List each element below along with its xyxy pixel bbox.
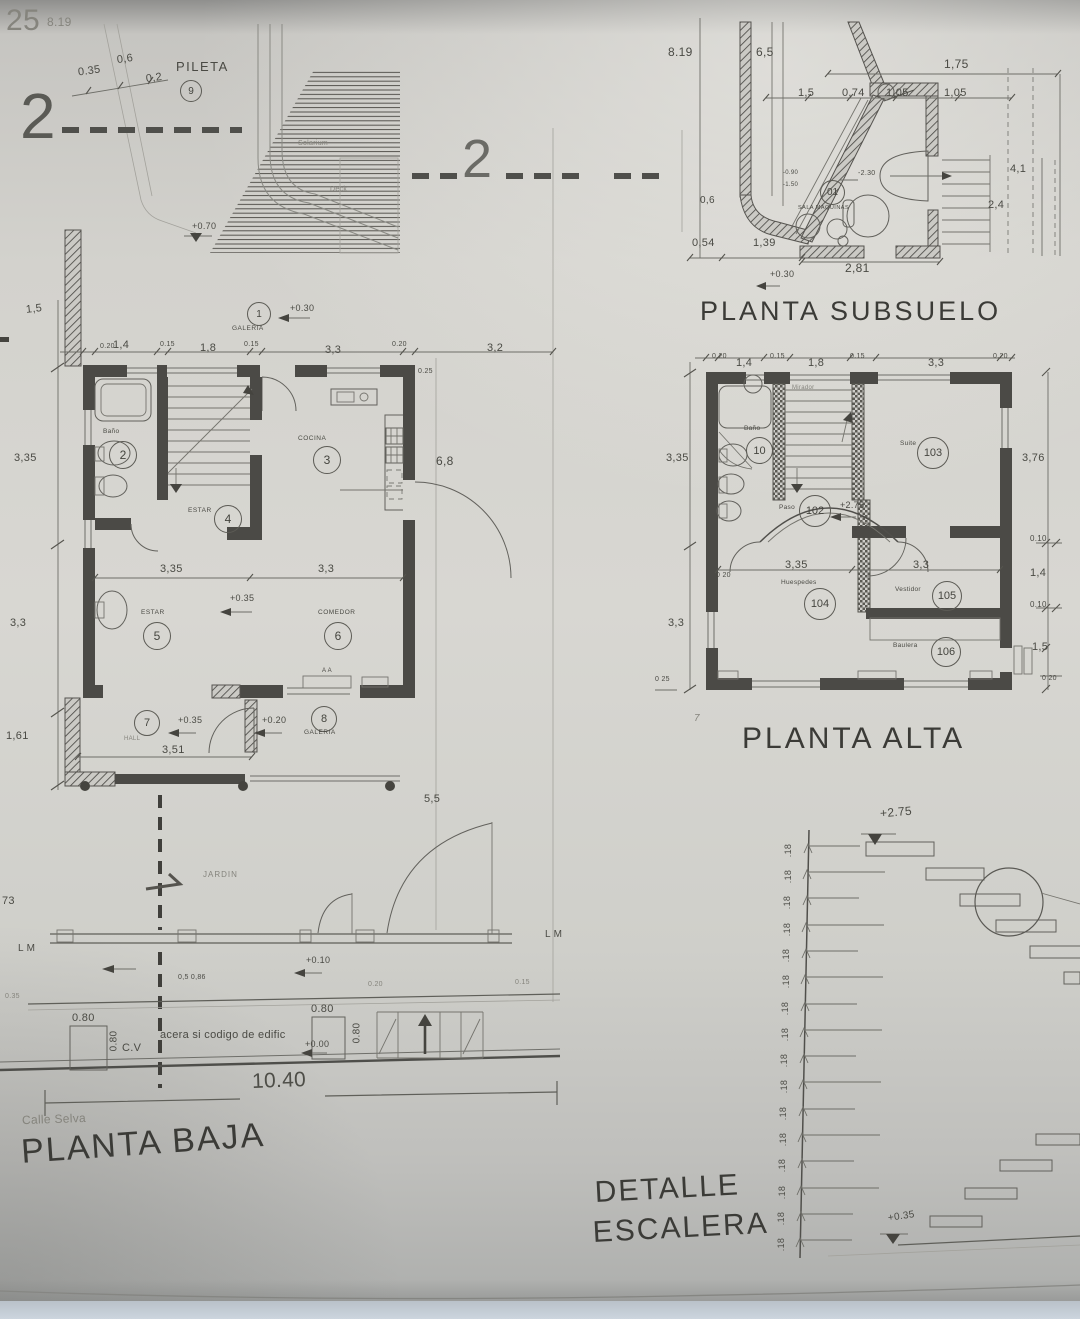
paper-edge-shadow <box>0 1280 1080 1302</box>
pool-plan-drawing <box>0 24 682 1002</box>
blueprint-sheet: 25 8.19 2 2 0.35 0,6 0,2 PILETA 9 Solari… <box>0 0 1080 1319</box>
alta-dim-33m: 3,3 <box>913 560 929 571</box>
alta-dim-14t: 1,4 <box>736 358 752 369</box>
baja-dim-14: 1,4 <box>113 340 129 351</box>
alta-dim-18: 1,8 <box>808 358 824 369</box>
baja-dim-15l: 1,5 <box>25 303 42 316</box>
vestidor-circle: 105 <box>932 581 962 611</box>
alta-dim-025: 0 25 <box>655 676 670 683</box>
huespedes-label: Huespedes <box>781 580 817 587</box>
alta-level-275: +2.75 <box>840 501 864 510</box>
sub-dim-074: 0,74 <box>842 88 865 99</box>
riser-dim-7: .18 <box>781 1002 790 1015</box>
riser-dim-10: .18 <box>780 1080 789 1093</box>
baja-level-035b: +0.35 <box>178 716 202 725</box>
alta-dim-015a: 0.15 <box>770 353 785 360</box>
baja-dim-020b: 0.20 <box>392 341 407 348</box>
sub-dim-65: 6,5 <box>756 46 774 58</box>
sub-room-circle: 01 <box>820 180 845 205</box>
estar4-circle: 4 <box>214 505 242 533</box>
alta-dim-14r: 1,4 <box>1030 568 1046 579</box>
street-name: Calle Selva <box>22 1112 86 1126</box>
alta-dim-010a: 0.10 <box>1030 535 1047 543</box>
baja-dim-035c: 0.35 <box>5 993 20 1000</box>
suite-label: Suite <box>900 441 916 448</box>
sub-dim-24: 2,4 <box>988 200 1004 211</box>
baja-dim-351: 3,51 <box>162 745 185 756</box>
baja-level-010: +0.10 <box>306 956 330 965</box>
bano2-circle: 2 <box>109 441 137 469</box>
galeria8-label: GALERIA <box>304 730 336 737</box>
riser-dim-1: .18 <box>784 844 793 857</box>
alta-dim-010b: 0.10 <box>1030 601 1047 609</box>
estar5-label: ESTAR <box>141 610 165 617</box>
pool-level: +0.70 <box>192 222 216 231</box>
pool-number-circle: 9 <box>180 80 202 102</box>
paso-label: Paso <box>779 505 795 512</box>
baja-level-035a: +0.35 <box>230 594 254 603</box>
baja-dim-173: 73 <box>2 896 15 907</box>
riser-dim-5: .18 <box>782 949 791 962</box>
hall7-label: HALL <box>124 736 140 742</box>
galeria1-label: GALERIA <box>232 326 264 333</box>
jardin-label: JARDIN <box>203 871 238 879</box>
planta-alta-title: PLANTA ALTA <box>742 724 965 754</box>
baja-dim-015c: 0.15 <box>515 979 530 986</box>
baulera-circle: 106 <box>931 637 961 667</box>
alta-mark-7: 7 <box>694 714 700 724</box>
mirador-label: Mirador <box>792 385 814 391</box>
comedor6-circle: 6 <box>324 622 352 650</box>
sub-room-label: SALA MAQUINAS <box>798 206 849 212</box>
alta-dim-020r: 0 20 <box>1042 675 1057 682</box>
estar4-label: ESTAR <box>188 508 212 515</box>
riser-dim-4: .18 <box>783 923 792 936</box>
alta-dim-33t: 3,3 <box>928 358 944 369</box>
huespedes-circle: 104 <box>804 588 836 620</box>
solarium-label: Solarium <box>298 140 328 147</box>
riser-dim-16: .18 <box>777 1238 786 1251</box>
photo-bottom-strip <box>0 1301 1080 1319</box>
sub-dim-15: 1,5 <box>798 88 814 99</box>
baja-dim-33: 3,3 <box>325 345 341 356</box>
baja-level-030: +0.30 <box>290 304 314 313</box>
baja-dim-68: 6,8 <box>436 455 454 467</box>
planta-alta-drawing <box>655 354 1062 693</box>
sub-dim-105a: 1,05 <box>886 88 909 99</box>
sub-dim-139: 1,39 <box>753 238 776 249</box>
baja-level-000: +0.00 <box>305 1040 329 1049</box>
sub-dim-054: 0,54 <box>692 238 715 249</box>
estar5-circle: 5 <box>143 622 171 650</box>
baja-level-020: +0.20 <box>262 716 286 725</box>
riser-dim-6: .18 <box>782 975 791 988</box>
hall7-circle: 7 <box>134 710 160 736</box>
alta-dim-335l: 3,35 <box>666 453 689 464</box>
box-080a-label: 0.80 <box>72 1013 95 1024</box>
sub-level-150: -1.50 <box>783 182 798 188</box>
subsuelo-plan-drawing <box>687 18 1061 290</box>
alta-dim-020b: 0.20 <box>993 353 1008 360</box>
subsuelo-title: PLANTA SUBSUELO <box>700 298 1001 325</box>
riser-dim-12: .18 <box>779 1133 788 1146</box>
sheet-corner-dim: 8.19 <box>47 16 72 28</box>
cocina3-circle: 3 <box>313 446 341 474</box>
esc-level-top: +2.75 <box>880 805 913 820</box>
baja-dim-33l: 3,3 <box>10 618 26 629</box>
box-080b-side: 0.80 <box>352 1023 362 1044</box>
sub-dim-175: 1,75 <box>944 58 969 70</box>
sub-dim-06: 0,6 <box>700 196 715 206</box>
pool-dim-06: 0,6 <box>116 53 134 66</box>
sub-dim-281: 2,81 <box>845 262 870 274</box>
suite-circle: 103 <box>917 437 949 469</box>
lm-label-left: L M <box>18 944 35 954</box>
deck-label: Deck <box>330 186 347 193</box>
sub-level-230: -2.30 <box>858 170 875 177</box>
pool-dim-02: 0,2 <box>145 72 163 85</box>
vestidor-label: Vestidor <box>895 587 921 594</box>
cocina3-label: COCINA <box>298 436 326 443</box>
baja-dim-55: 5,5 <box>424 794 440 805</box>
baja-dim-18: 1,8 <box>200 343 216 354</box>
baja-dim-015b: 0.15 <box>244 341 259 348</box>
detalle-title-line1: DETALLE <box>594 1170 741 1208</box>
riser-dim-2: .18 <box>784 870 793 883</box>
baja-dim-161: 1,61 <box>6 731 29 742</box>
sheet-corner-number: 25 <box>6 6 40 36</box>
comedor6-label: COMEDOR <box>318 610 355 617</box>
baja-dim-015a: 0.15 <box>160 341 175 348</box>
alta-dim-020m: 0 20 <box>716 572 731 579</box>
sub-level-090: -0.90 <box>783 170 798 176</box>
box-080a-side: 0.80 <box>109 1031 119 1052</box>
lot-width-dim: 10.40 <box>252 1069 307 1092</box>
cv-label: C.V <box>122 1043 141 1054</box>
bano10-label: Baño <box>744 426 760 433</box>
baja-dim-025: 0.25 <box>418 368 433 375</box>
galeria1-circle: 1 <box>247 302 271 326</box>
baja-dim-33m: 3,3 <box>318 564 334 575</box>
paso-circle: 102 <box>799 495 831 527</box>
baja-dim-32: 3,2 <box>487 343 503 354</box>
bano2-label: Baño <box>103 429 119 436</box>
alta-dim-15r: 1,5 <box>1032 642 1048 653</box>
baja-aa-mark: A A <box>322 668 332 674</box>
riser-dim-9: .18 <box>780 1054 789 1067</box>
lm-label-right: L M <box>545 930 562 940</box>
alta-dim-335m: 3,35 <box>785 560 808 571</box>
bano10-circle: 10 <box>746 437 773 464</box>
section-mark-left: 2 <box>20 84 56 148</box>
section-mark-mid: 2 <box>462 132 492 186</box>
box-080b-label: 0.80 <box>311 1004 334 1015</box>
alta-dim-33l: 3,3 <box>668 618 684 629</box>
baulera-label: Baulera <box>893 643 918 650</box>
planta-baja-drawing <box>0 230 560 1116</box>
riser-dim-14: .18 <box>778 1186 787 1199</box>
alta-dim-015b: 0.15 <box>850 353 865 360</box>
sub-dim-105b: 1,05 <box>944 88 967 99</box>
sub-level-030: +0.30 <box>770 270 794 279</box>
baja-dim-020c: 0.20 <box>368 981 383 988</box>
riser-dim-11: .18 <box>779 1107 788 1120</box>
riser-dim-3: .18 <box>783 896 792 909</box>
baja-dim-335m: 3,35 <box>160 564 183 575</box>
sub-dim-41: 4,1 <box>1010 164 1026 175</box>
plan-linework <box>0 0 1080 1319</box>
baja-dim-0586: 0,5 0,86 <box>178 974 206 981</box>
sidewalk-note: acera si codigo de edific <box>160 1030 286 1041</box>
riser-dim-8: .18 <box>781 1028 790 1041</box>
alta-dim-376: 3,76 <box>1022 453 1045 464</box>
sub-dim-819: 8.19 <box>668 46 693 58</box>
baja-dim-335l: 3,35 <box>14 453 37 464</box>
alta-dim-020a: 0.20 <box>712 353 727 360</box>
pool-label: PILETA <box>176 60 229 73</box>
riser-dim-15: .18 <box>777 1212 786 1225</box>
riser-dim-13: .18 <box>778 1159 787 1172</box>
